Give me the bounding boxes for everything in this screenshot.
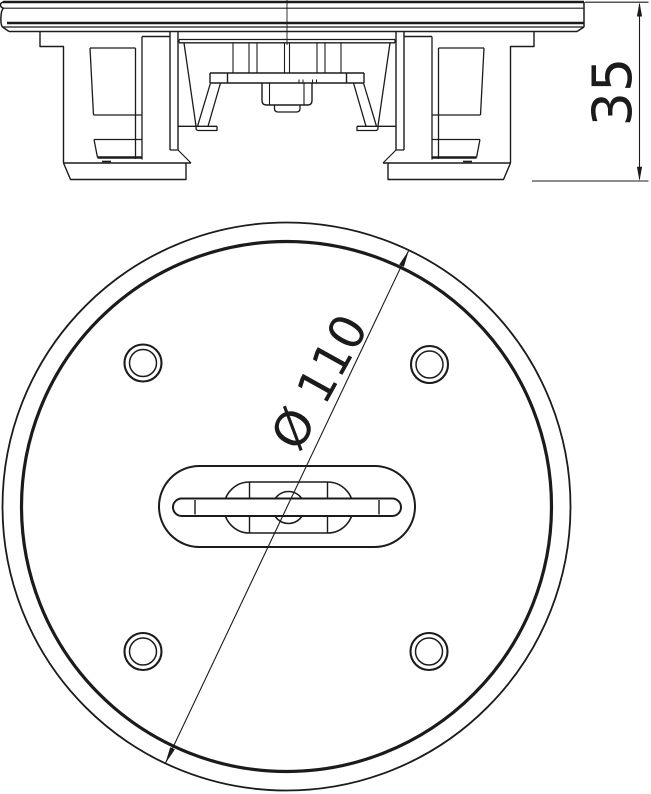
ribs <box>233 43 341 73</box>
center-mechanism <box>170 32 404 164</box>
left-leg <box>40 32 191 180</box>
screw-hole-inner <box>130 638 157 665</box>
height-dimension: 35 <box>532 2 649 181</box>
arrowhead-bottom-left <box>165 747 175 764</box>
screw-hole-top-right <box>411 346 448 383</box>
diagonal-struts <box>184 43 390 126</box>
screw-hole-inner <box>416 351 443 378</box>
screw-hole-inner <box>416 638 443 665</box>
housing-base-joins <box>170 150 404 163</box>
housing-walls <box>178 32 396 151</box>
screw-hole-top-left <box>125 345 162 382</box>
center-tab <box>275 105 301 112</box>
arrowhead-down <box>637 167 642 181</box>
screw-hole-bottom-left <box>125 633 162 670</box>
plate-thick-lines <box>3 2 584 23</box>
technical-drawing: 35 <box>0 0 651 794</box>
technical-drawing-page: 35 <box>0 0 651 794</box>
top-view: Ø 110 <box>3 223 571 791</box>
arrowhead-up <box>637 2 642 16</box>
right-leg <box>383 32 534 180</box>
diameter-dimension-label: Ø 110 <box>260 305 379 459</box>
cover-plate <box>0 0 584 45</box>
center-block-inner <box>270 83 305 105</box>
right-leg-window <box>432 37 484 160</box>
left-leg-window <box>90 37 142 160</box>
screw-hole-inner <box>130 350 157 377</box>
bracket-feet <box>178 126 396 130</box>
arrowhead-top-right <box>399 250 409 266</box>
side-view: 35 <box>0 0 648 181</box>
bracket-plate <box>210 73 364 83</box>
screw-hole-bottom-right <box>411 633 448 670</box>
height-dimension-label: 35 <box>581 58 644 127</box>
